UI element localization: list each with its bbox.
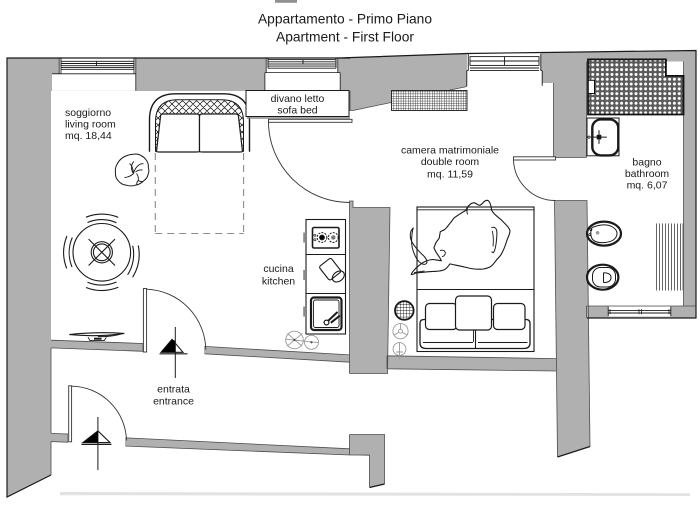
svg-text:entrata: entrata bbox=[157, 384, 190, 396]
svg-text:kitchen: kitchen bbox=[262, 276, 295, 288]
svg-text:double room: double room bbox=[421, 156, 480, 168]
svg-text:sofa bed: sofa bed bbox=[277, 105, 317, 117]
svg-text:mq. 11,59: mq. 11,59 bbox=[427, 169, 473, 181]
svg-text:camera matrimoniale: camera matrimoniale bbox=[401, 145, 499, 157]
svg-text:mq. 18,44: mq. 18,44 bbox=[65, 130, 112, 142]
svg-text:Apartment - First Floor: Apartment - First Floor bbox=[276, 30, 414, 45]
svg-text:entrance: entrance bbox=[153, 396, 194, 408]
svg-text:soggiorno: soggiorno bbox=[65, 107, 111, 119]
svg-text:Appartamento - Primo Piano: Appartamento - Primo Piano bbox=[258, 12, 432, 27]
svg-text:bathroom: bathroom bbox=[625, 168, 670, 180]
svg-text:cucina: cucina bbox=[263, 263, 294, 275]
svg-text:mq. 6,07: mq. 6,07 bbox=[627, 180, 668, 192]
svg-text:divano letto: divano letto bbox=[271, 93, 325, 105]
svg-text:living room: living room bbox=[65, 119, 116, 131]
svg-text:bagno: bagno bbox=[632, 157, 661, 169]
